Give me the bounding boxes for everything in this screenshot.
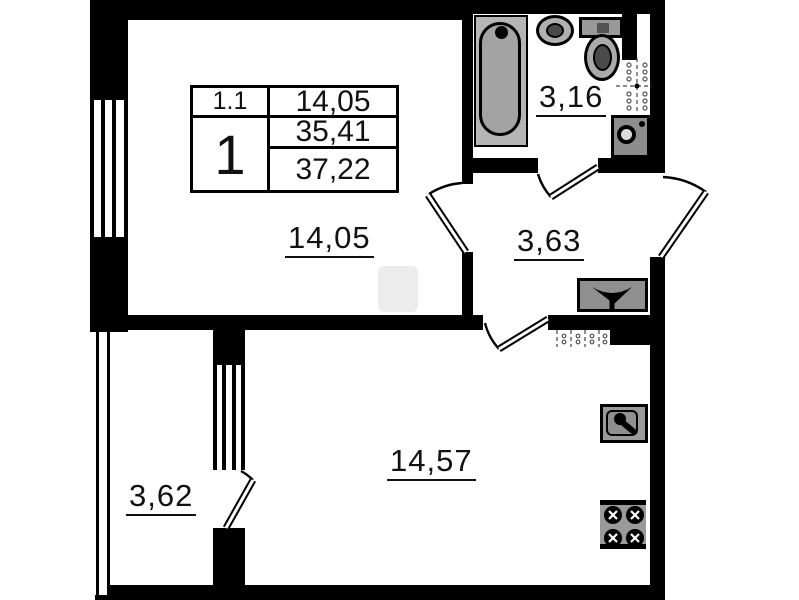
wall-left-upper [90, 0, 128, 100]
toilet-bowl-inner [593, 44, 612, 71]
legend-apartment-rooms: 1 [193, 118, 270, 190]
window-loggia [213, 365, 245, 470]
wall-bathroom-bottom-left [473, 158, 538, 173]
vent-shaft-icon-bathroom [616, 58, 652, 113]
bathtub-drain [495, 26, 508, 39]
exhaust-fan-box [577, 278, 648, 312]
wall-bottom [107, 585, 665, 600]
wall-right-lower [650, 257, 665, 600]
legend-total-area: 37,22 [270, 149, 396, 190]
window-pane [213, 365, 217, 470]
wall-loggia-stub-bottom [213, 528, 245, 585]
kitchen-sink-basin [606, 410, 638, 436]
watermark [378, 266, 418, 312]
stove-icon [600, 500, 646, 549]
door-swing-kitchen [485, 319, 548, 349]
door-swing-loggia [226, 471, 253, 528]
floor-plan: 1.1 14,05 1 35,41 37,22 14,05 3,16 3,63 … [0, 0, 799, 600]
door-swing-entrance [661, 177, 706, 257]
door-swing-bathroom [538, 167, 598, 197]
legend-living-area: 35,41 [270, 118, 396, 149]
window-pane [90, 100, 94, 237]
window-pane [232, 365, 236, 470]
room-label-bedroom: 14,05 [285, 222, 374, 258]
wall-divider-lower [462, 252, 473, 330]
window-pane [101, 100, 105, 237]
wall-loggia-thin-inner [107, 330, 110, 600]
wall-loggia-thin-outer [96, 330, 99, 600]
toilet-button [597, 23, 609, 33]
legend-table: 1.1 14,05 1 35,41 37,22 [190, 85, 399, 193]
sink-bowl [546, 23, 564, 38]
room-label-bathroom: 3,16 [536, 81, 606, 117]
window-pane [241, 365, 245, 470]
washer-knob [639, 121, 645, 127]
wall-divider-upper [462, 14, 473, 184]
wall-loggia-stub-top [213, 330, 245, 365]
vent-shaft-icon-kitchen [557, 330, 607, 347]
room-label-kitchen-living: 14,57 [387, 445, 476, 481]
washing-machine-icon [611, 115, 650, 158]
window-left [90, 100, 128, 237]
wall-bathroom-right [650, 0, 665, 173]
window-pane [112, 100, 116, 237]
legend-room-number: 1.1 [193, 88, 270, 118]
kitchen-sink-icon [600, 404, 648, 443]
window-pane [222, 365, 226, 470]
wall-top-right [460, 0, 665, 14]
wall-kitchen-vent-stub [610, 330, 650, 345]
room-label-hallway: 3,63 [514, 225, 584, 261]
bathroom-sink-icon [536, 15, 574, 46]
washer-drum [617, 125, 636, 144]
wall-vent-stub [622, 14, 637, 60]
wall-middle-horizontal [90, 315, 483, 330]
window-pane [124, 100, 128, 237]
bathtub-icon [474, 15, 528, 147]
room-label-loggia: 3,62 [126, 480, 196, 516]
door-swing-bedroom [428, 183, 466, 252]
wall-middle-right [548, 315, 650, 330]
bathtub-basin [479, 22, 521, 136]
toilet-bowl-icon [584, 34, 620, 81]
legend-room-area: 14,05 [270, 88, 396, 118]
wall-top-left [90, 0, 473, 20]
wall-bathroom-bottom-right [598, 158, 665, 173]
